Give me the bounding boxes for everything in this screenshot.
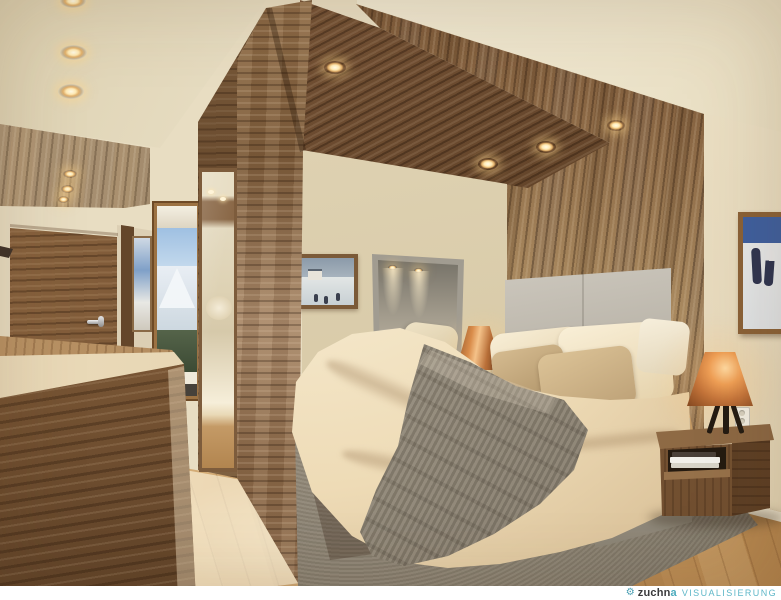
watermark-brand-main: zuchn [638, 587, 671, 599]
ceiling-spotlight [58, 84, 84, 99]
window-sky-view [157, 228, 197, 266]
landscape-painting-figure [314, 294, 318, 302]
ski-poster-sky [743, 217, 781, 243]
landscape-painting-figure [336, 293, 340, 301]
interior-rendering: zuchna VISUALISIERUNG [0, 0, 781, 600]
soffit-spotlight [63, 170, 77, 178]
canopy-spotlight [607, 120, 625, 131]
niche-light-cone [382, 268, 404, 316]
mirror-glass [202, 172, 234, 468]
ceiling-spotlight [60, 45, 87, 60]
tripod-leg [723, 404, 729, 434]
window-roller-blind [157, 206, 197, 228]
tripod-leg [706, 404, 720, 434]
landscape-painting-house [308, 271, 322, 280]
mirror-sheen [202, 172, 234, 468]
niche-light-cone [408, 271, 430, 319]
book [671, 463, 719, 468]
watermark-brand: zuchna [638, 587, 677, 599]
nightstand-lamp-tripod [703, 404, 749, 434]
soffit-spotlight [58, 196, 69, 203]
watermark-bar: zuchna VISUALISIERUNG [0, 586, 781, 600]
tripod-leg [730, 404, 744, 434]
canopy-spotlight [324, 61, 346, 74]
landscape-painting-figure [324, 296, 328, 304]
gear-icon [626, 588, 635, 598]
canopy-spotlight [536, 141, 556, 153]
ski-poster-figure [751, 248, 762, 284]
soffit-spotlight [61, 185, 74, 193]
canopy-spotlight [478, 158, 498, 170]
watermark-brand-accent: a [671, 587, 677, 599]
door-handle-rosette [98, 316, 104, 327]
framed-artwork-small [132, 236, 152, 332]
watermark-company-type: VISUALISIERUNG [682, 588, 777, 598]
